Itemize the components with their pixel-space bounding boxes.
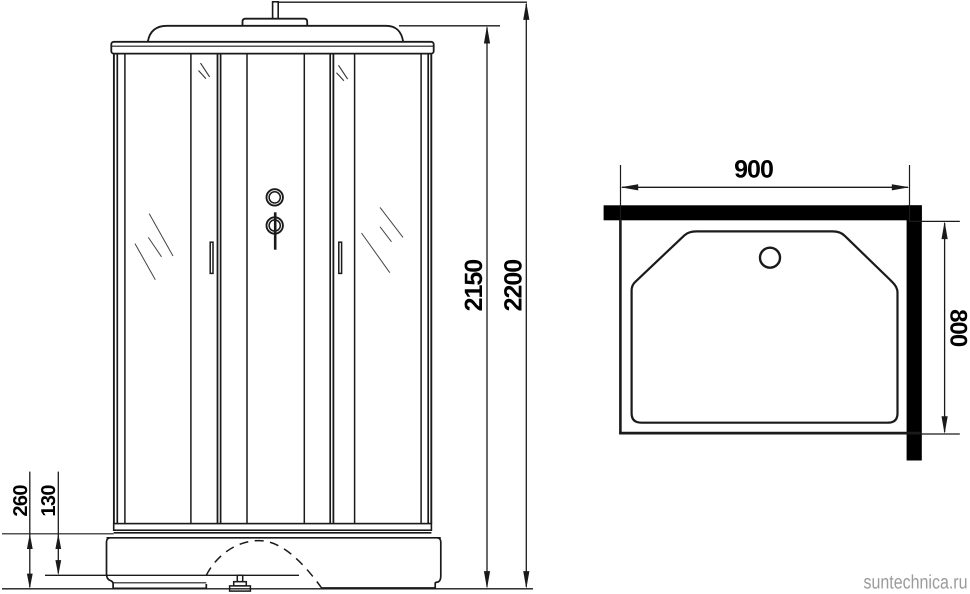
svg-text:2150: 2150 xyxy=(460,260,488,312)
svg-text:2200: 2200 xyxy=(500,260,528,312)
svg-text:900: 900 xyxy=(734,156,773,184)
svg-text:800: 800 xyxy=(945,309,970,347)
svg-text:130: 130 xyxy=(38,485,60,517)
svg-text:suntechnica.ru: suntechnica.ru xyxy=(864,572,968,594)
svg-text:260: 260 xyxy=(10,485,32,517)
